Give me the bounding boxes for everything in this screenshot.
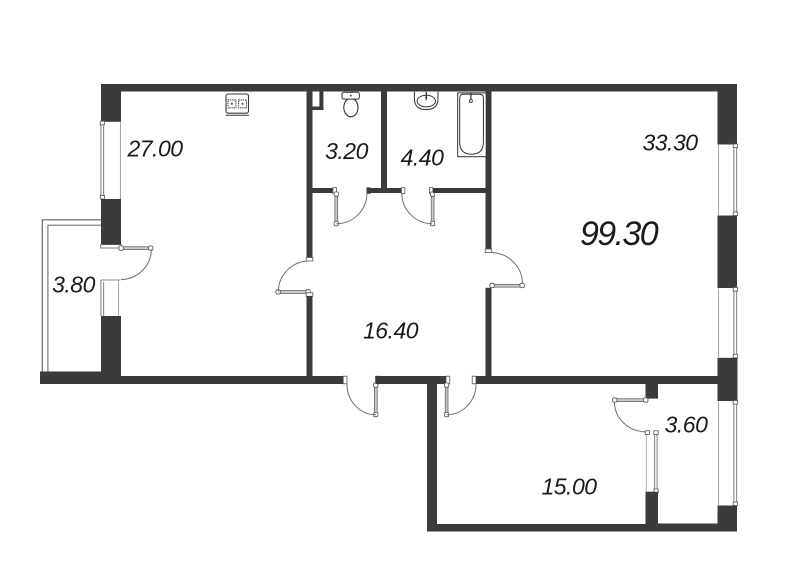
svg-text:15.00: 15.00 xyxy=(541,474,597,500)
svg-text:3.20: 3.20 xyxy=(325,138,368,164)
svg-text:3.60: 3.60 xyxy=(665,412,708,438)
svg-text:99.30: 99.30 xyxy=(580,215,659,253)
svg-text:16.40: 16.40 xyxy=(363,318,419,344)
svg-text:27.00: 27.00 xyxy=(126,136,183,162)
svg-text:33.30: 33.30 xyxy=(642,130,698,156)
svg-text:4.40: 4.40 xyxy=(401,145,444,171)
svg-text:3.80: 3.80 xyxy=(52,272,95,298)
